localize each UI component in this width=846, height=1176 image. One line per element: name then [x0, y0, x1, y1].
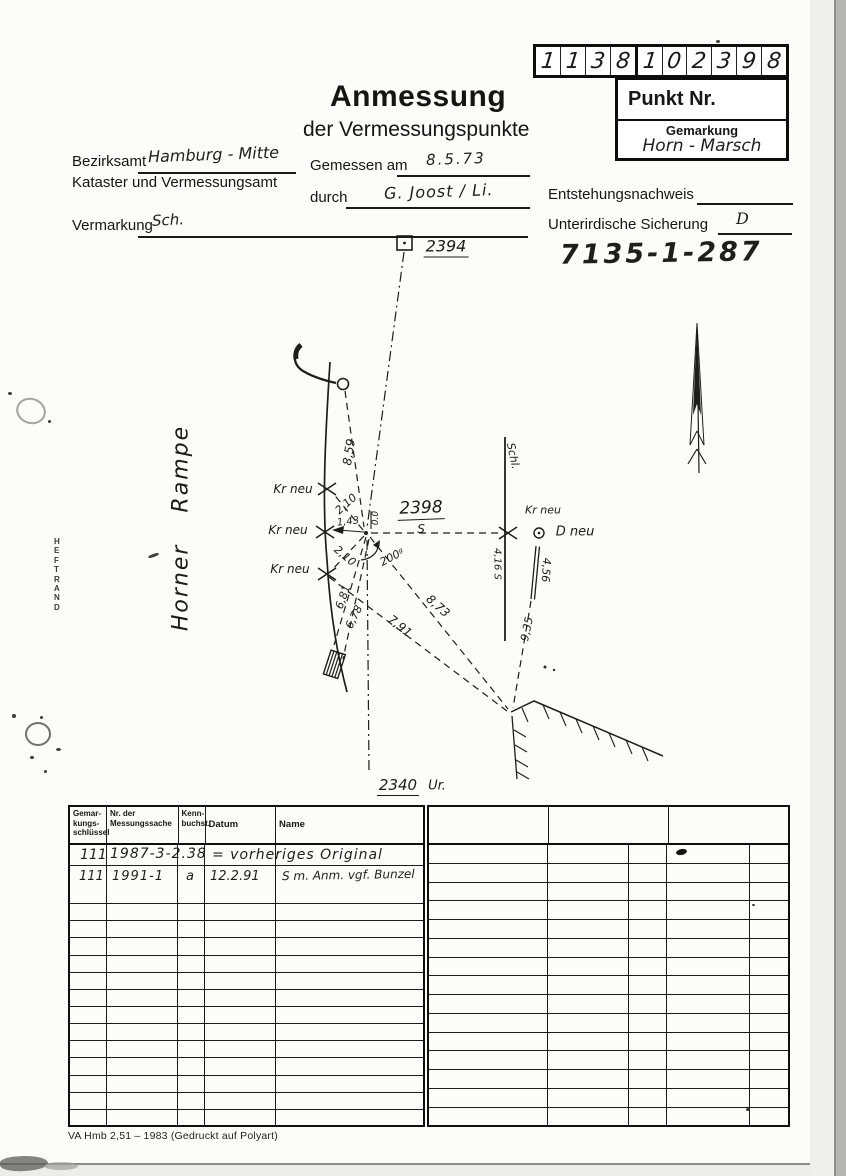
col-kennbuchstabe: Kenn- buchst.	[179, 807, 206, 843]
table-row	[429, 864, 788, 883]
table-row	[70, 956, 423, 973]
ink-speck	[56, 748, 61, 751]
ink-speck	[30, 756, 34, 759]
sketch-label: Kr neu	[525, 504, 561, 517]
row1-text: = vorheriges Original	[212, 847, 383, 863]
col-messungssache: Nr. der Messungssache	[107, 807, 179, 843]
table-row	[429, 1089, 788, 1108]
table-row	[429, 845, 788, 864]
table-row	[429, 958, 788, 977]
col-datum: Datum	[206, 807, 277, 843]
ink-speck	[12, 714, 16, 718]
table-row	[70, 1041, 423, 1058]
sketch-label: Horner Rampe	[169, 425, 194, 631]
table-row	[70, 990, 423, 1007]
empty-rows	[70, 887, 423, 1127]
sketch-label: Kr neu	[273, 482, 312, 496]
col-gemarkungsschluessel: Gemar- kungs- schlüssel	[70, 807, 107, 843]
right-empty-table	[427, 805, 790, 1127]
row1-sache: 1987-3-2.38	[110, 846, 207, 862]
scanned-form-page: Anmessung der Vermessungspunkte 11381023…	[0, 0, 846, 1176]
table-row	[429, 1014, 788, 1033]
table-row	[70, 1058, 423, 1075]
table-row	[429, 1070, 788, 1089]
station-point-2398	[364, 531, 368, 535]
table-row	[429, 920, 788, 939]
table-row	[70, 1110, 423, 1127]
table-row	[70, 1076, 423, 1093]
table-row	[70, 1007, 423, 1024]
sketch-label: Ur.	[428, 779, 446, 794]
ink-speck	[44, 770, 47, 773]
form-footer: VA Hmb 2,51 – 1983 (Gedruckt auf Polyart…	[68, 1130, 278, 1142]
table-row	[429, 1108, 788, 1127]
row2-name: S m. Anm. vgf. Bunzel	[282, 867, 415, 883]
sketch-label: 2398	[397, 497, 445, 521]
col-name: Name	[276, 807, 423, 843]
table-row	[70, 904, 423, 921]
sketch-label: 4,56	[539, 557, 554, 582]
table-row	[70, 973, 423, 990]
table-row	[70, 1024, 423, 1041]
row2-schluessel: 111	[79, 869, 104, 884]
table-row	[70, 921, 423, 938]
ink-speck	[8, 392, 12, 395]
table-row	[429, 883, 788, 902]
ink-speck	[40, 716, 43, 719]
double-line	[531, 546, 540, 600]
hook-symbol	[295, 345, 349, 390]
sketch-label: Kr neu	[270, 562, 309, 576]
sketch-label: D neu	[556, 525, 595, 540]
north-arrow-icon	[688, 323, 706, 473]
table-row	[70, 1093, 423, 1110]
table-row	[429, 901, 788, 920]
d-neu-point	[534, 528, 544, 538]
table-row	[429, 1051, 788, 1070]
row1-schluessel: 111	[80, 847, 107, 863]
table-row	[429, 995, 788, 1014]
slope-hatching	[511, 701, 663, 779]
sketch-label: Kr neu	[268, 523, 307, 537]
point-marker-2394	[397, 236, 412, 250]
table-row	[429, 976, 788, 995]
sketch-label: S	[417, 522, 425, 536]
messung-table-header: Gemar- kungs- schlüssel Nr. der Messungs…	[70, 807, 423, 845]
row2-sache: 1991-1	[112, 869, 164, 884]
row2-datum: 12.2.91	[210, 869, 260, 884]
sketch-label: 4,16 S	[492, 548, 503, 580]
sketch-label: 1,43	[336, 515, 359, 528]
table-row	[70, 938, 423, 955]
sketch-label: 2340	[377, 776, 419, 796]
sketch-label: 0.0	[371, 511, 381, 525]
ink-speck	[48, 420, 51, 423]
table-row	[429, 1033, 788, 1052]
ink-blot-ring	[25, 722, 51, 746]
sketch-label: 2394	[424, 237, 469, 258]
row2-kenn: a	[186, 869, 194, 884]
table-row	[429, 939, 788, 958]
table-row	[70, 887, 423, 904]
